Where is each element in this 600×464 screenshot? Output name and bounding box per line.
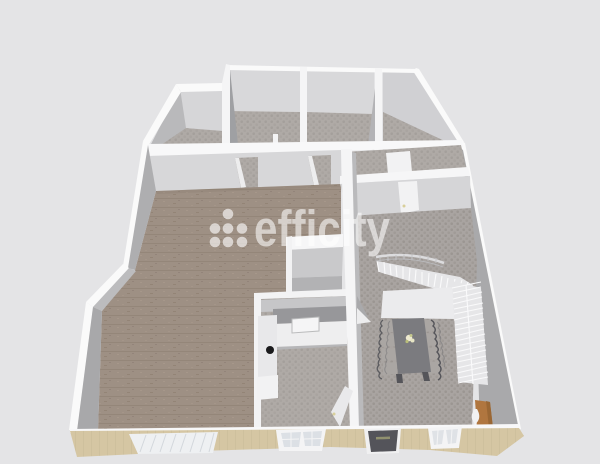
svg-text:efficity: efficity	[254, 200, 391, 257]
